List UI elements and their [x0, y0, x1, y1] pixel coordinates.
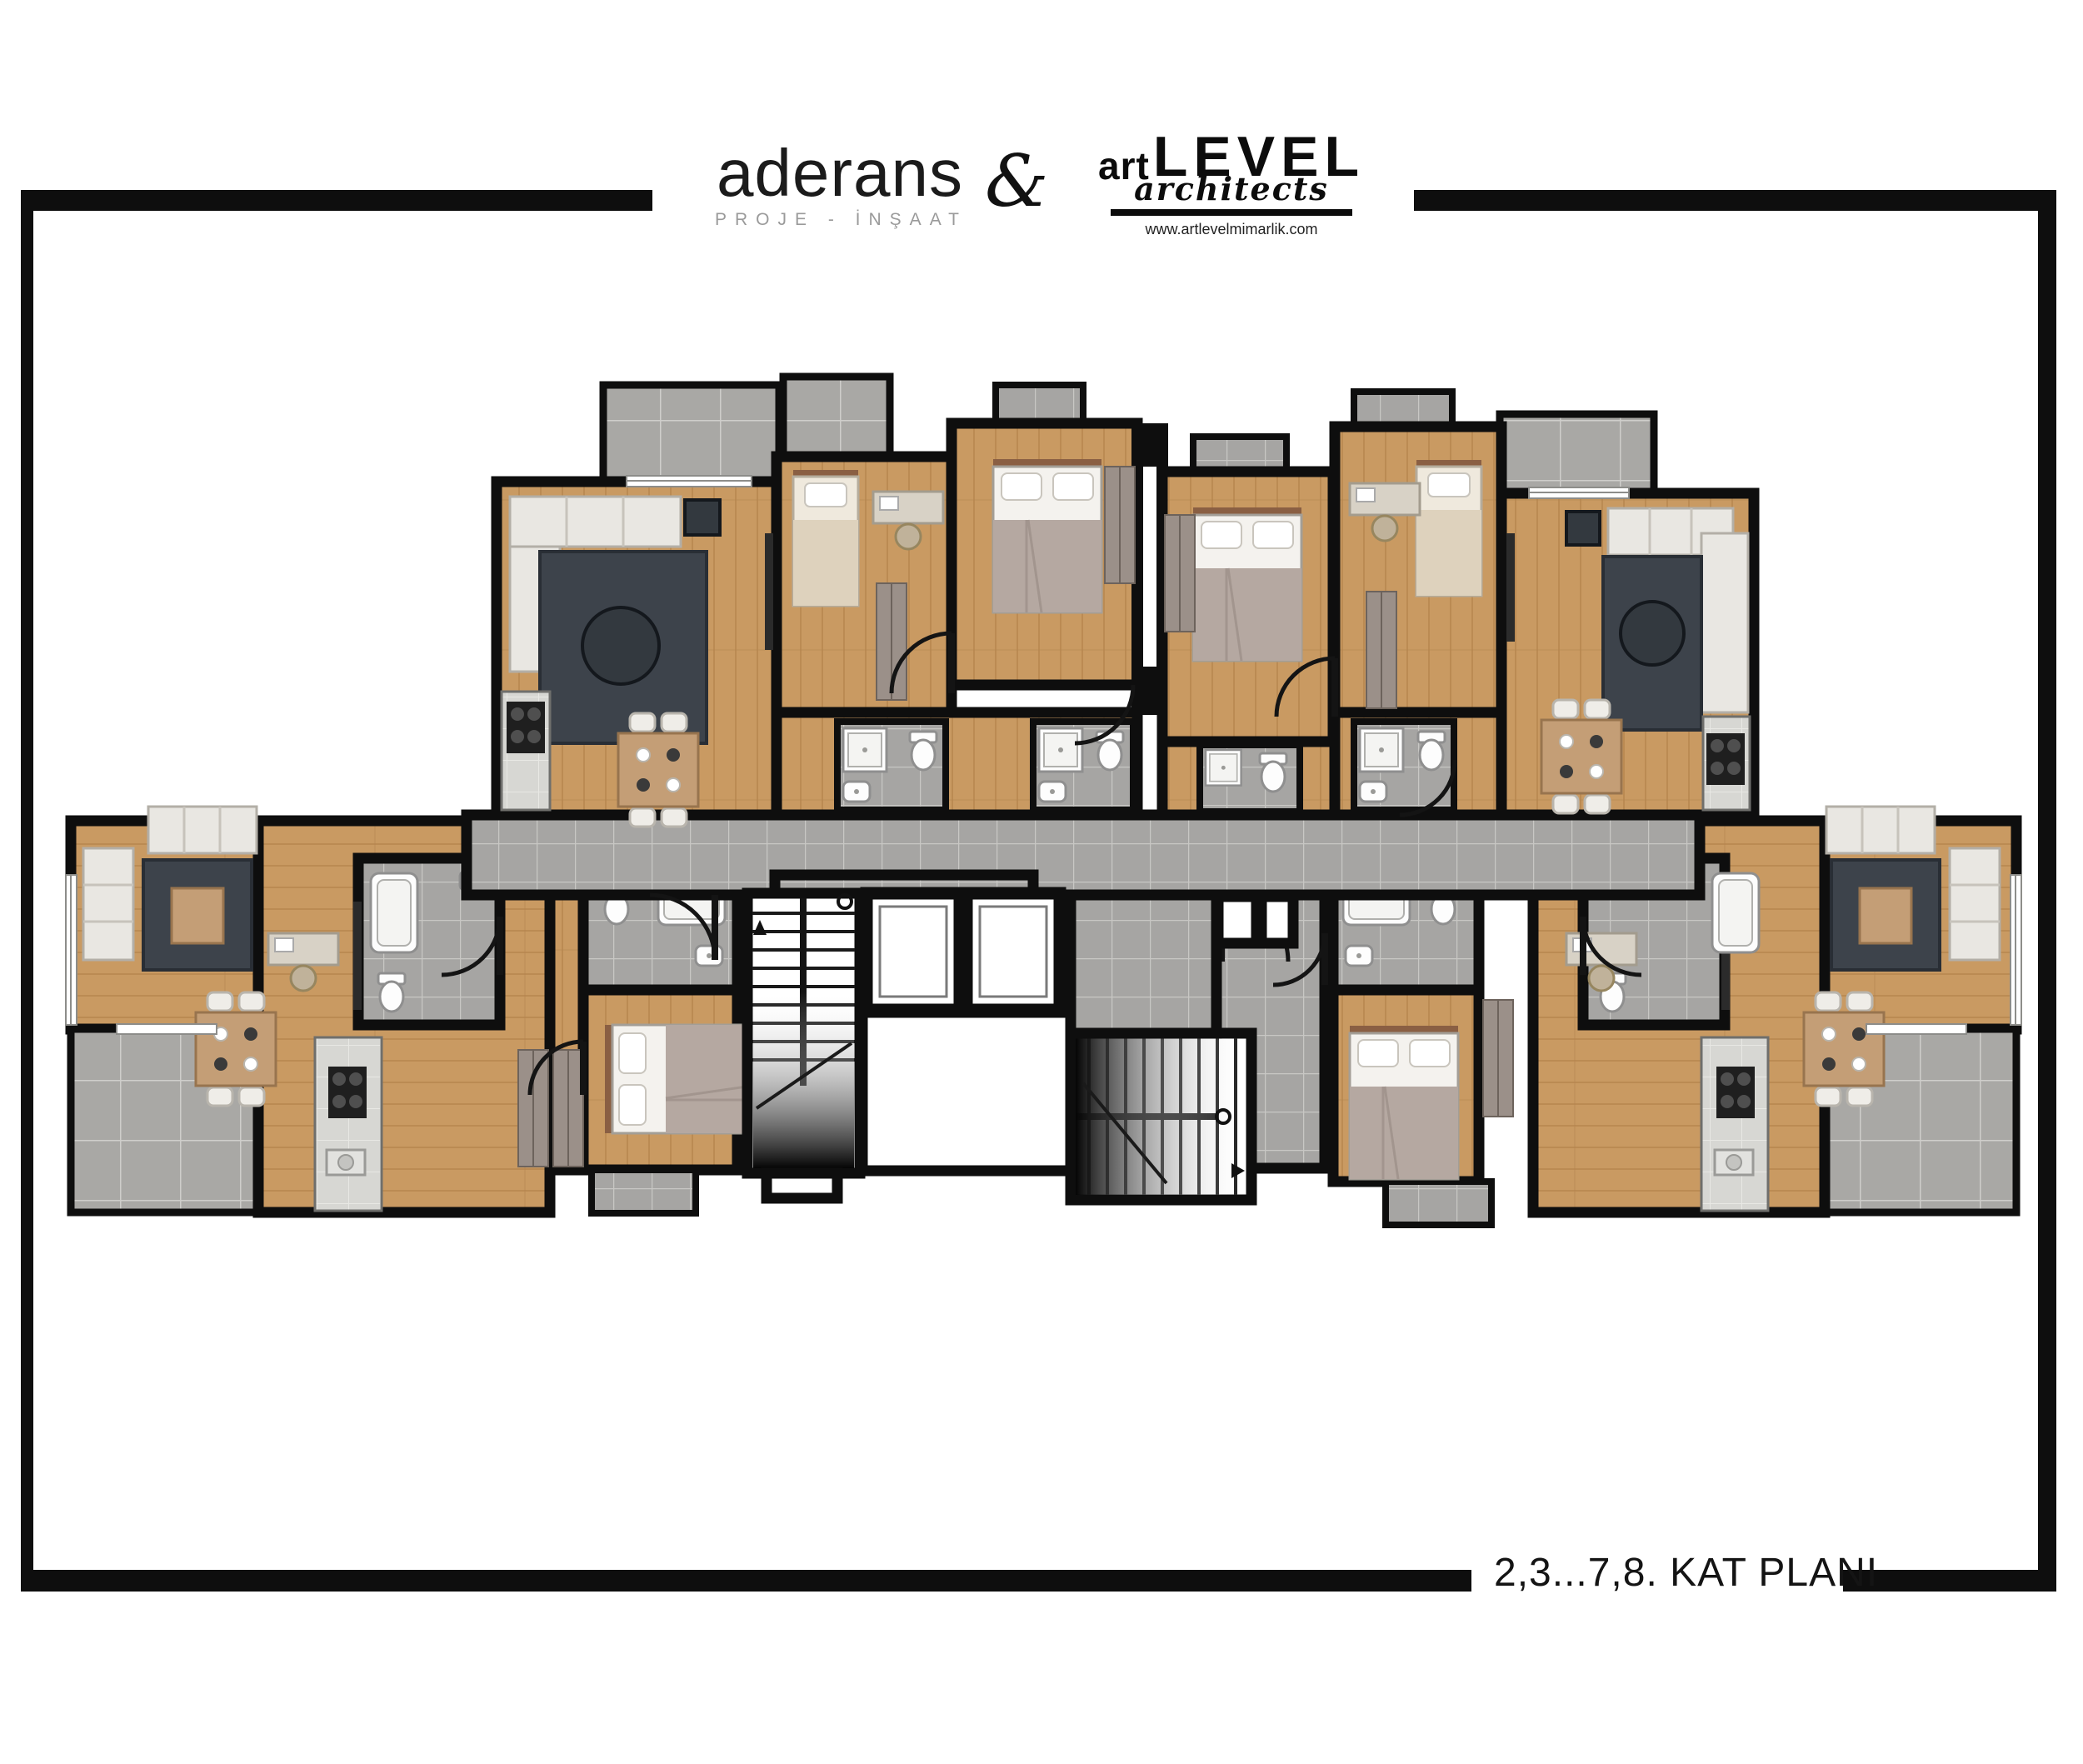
double-bed — [605, 1025, 758, 1133]
double-bed — [1193, 507, 1301, 661]
top-wing — [497, 377, 1754, 827]
coffee-table — [172, 888, 223, 943]
elevator-1 — [867, 893, 960, 1012]
brand-aderans: aderans PROJE - İNŞAAT — [715, 142, 965, 230]
balcony-top-right — [1500, 414, 1654, 493]
floor-plan-title: 2,3...7,8. KAT PLANI — [1494, 1550, 1878, 1596]
round-coffee-table — [1621, 602, 1684, 665]
floor-plan-drawing — [0, 0, 2083, 1764]
core-hall — [1071, 895, 1216, 1033]
shaft-void — [862, 1012, 1071, 1171]
balcony-upper — [783, 377, 890, 458]
rear-balcony — [1386, 1182, 1491, 1225]
brand-aderans-name: aderans — [715, 142, 965, 205]
duct — [1261, 897, 1293, 943]
core — [747, 893, 1293, 1200]
brand-separator: & — [985, 140, 1049, 223]
tv-panel — [765, 533, 773, 650]
stairwell-right — [1071, 1033, 1251, 1200]
tv-panel — [1506, 533, 1515, 642]
coffee-table — [1860, 888, 1911, 943]
stair-landing-nook — [767, 1173, 837, 1198]
kitchen-counter — [1701, 1037, 1768, 1211]
round-coffee-table — [582, 607, 659, 684]
tv-panel — [353, 902, 362, 1010]
elevator-2 — [967, 893, 1060, 1012]
brand-aderans-tagline: PROJE - İNŞAAT — [715, 210, 965, 230]
double-bed — [993, 459, 1101, 612]
duct — [1218, 897, 1256, 943]
rear-balcony — [592, 1170, 696, 1213]
brand-website: www.artlevelmimarlik.com — [1111, 221, 1352, 238]
single-bed — [1416, 460, 1481, 596]
brand-artlevel: art LEVEL architects www.artlevelmimarli… — [1111, 133, 1352, 238]
brand-underline — [1111, 209, 1352, 216]
balcony-top-left — [603, 385, 779, 482]
stairwell-left — [747, 893, 860, 1198]
brand-architects: architects — [1111, 170, 1352, 207]
kitchen-counter — [315, 1037, 382, 1211]
double-bed — [1350, 1026, 1458, 1179]
single-bed — [793, 470, 858, 606]
